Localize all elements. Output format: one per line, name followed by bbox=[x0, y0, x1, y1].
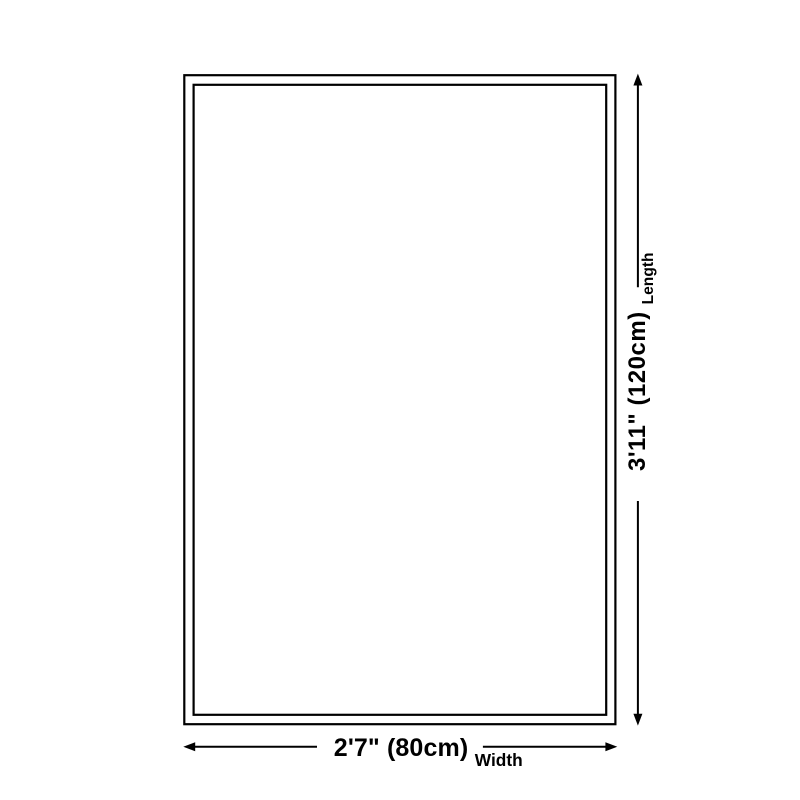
svg-text:2'7" (80cm): 2'7" (80cm) bbox=[334, 734, 468, 762]
svg-text:Length: Length bbox=[640, 252, 657, 304]
svg-text:Width: Width bbox=[475, 750, 523, 770]
svg-text:3'11" (120cm): 3'11" (120cm) bbox=[624, 311, 651, 471]
